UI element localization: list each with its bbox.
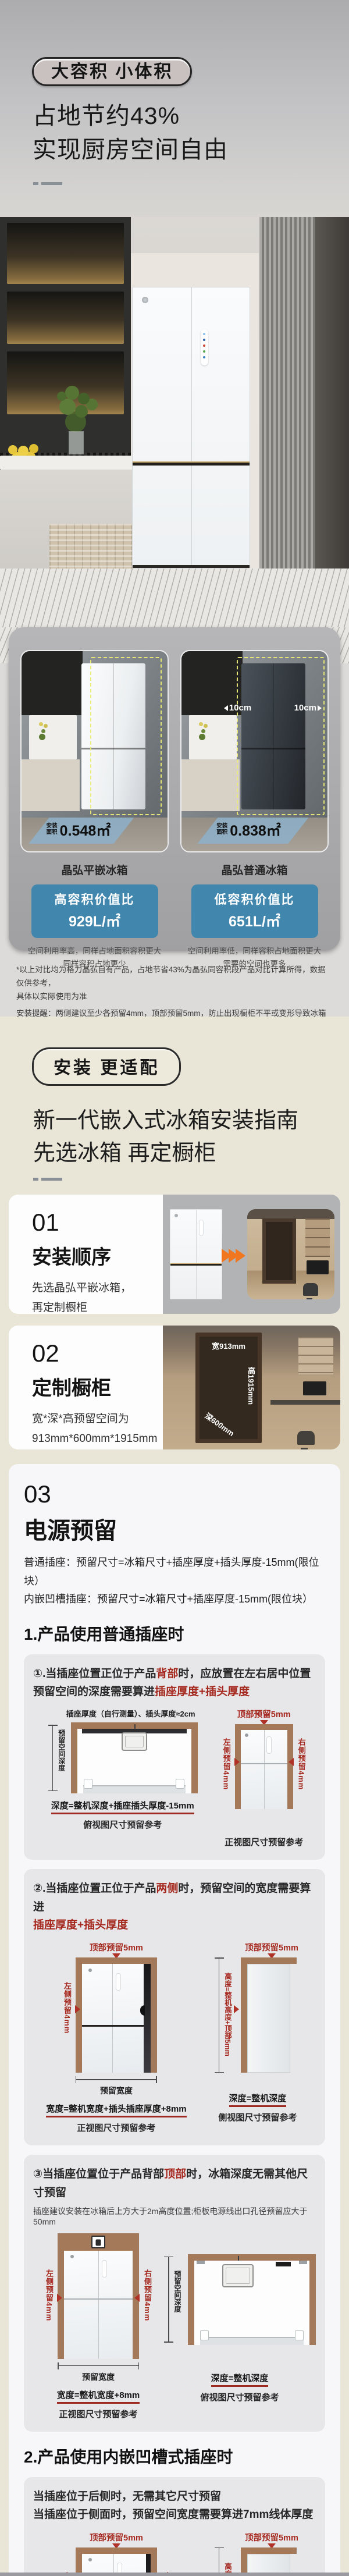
brand-logo-icon — [142, 297, 148, 303]
desc-line1: 宽*深*高预留空间为 — [32, 1409, 163, 1429]
right-reserve-label: 右侧预留4mm — [142, 2269, 153, 2321]
fridge-front — [82, 2554, 151, 2573]
text: ②.当插座位置正位于产品 — [33, 1882, 156, 1895]
hero-title-line2: 实现厨房空间自由 — [33, 133, 228, 166]
curtain — [259, 217, 315, 594]
footnote-text: 具体以实际使用为准 — [16, 992, 87, 1001]
fridge-front — [64, 2251, 133, 2359]
page-bottom-bar — [0, 2573, 349, 2576]
height-axis-label: 高度=整机高度+顶部5mm — [222, 1973, 233, 2056]
frontview-figure-column: 顶部预留5mm 左侧预留4mm 右侧预留4 — [212, 1708, 316, 1848]
desc-line2: 913mm*600mm*1915mm — [32, 1429, 163, 1449]
right-reserve-label: 右侧预留4mm — [296, 1738, 307, 1790]
panel-text: ②.当插座位置正位于产品两侧时，预留空间的宽度需要算进 插座厚度+插头厚度 — [33, 1879, 316, 1934]
cabinet-alcove-photo — [247, 1209, 334, 1299]
socket-knob — [140, 2005, 145, 2016]
step-description: 先选晶弘平嵌冰箱， 再定制橱柜 — [32, 1278, 163, 1314]
step2-text: 02 定制橱柜 宽*深*高预留空间为 913mm*600mm*1915mm — [9, 1326, 163, 1449]
frontview-figure-column: 左侧预留4mm 右侧预留4mm 预留宽度 宽度=整机宽度+8mm 正视图尺寸预留… — [33, 2233, 163, 2420]
area-prefix: 安装 — [47, 823, 58, 829]
formula-normal-socket: 普通插座：预留尺寸=冰箱尺寸+插座厚度+插头厚度-15mm(限位块） — [24, 1554, 325, 1590]
flush-fridge-photo: 安装面积 0.548㎡ — [20, 650, 169, 852]
brand-logo-icon — [88, 1969, 92, 1972]
panel-text: ①.当插座位置正位于产品背部时，应放置在左右居中位置 预留空间的深度需要算进插座… — [33, 1665, 316, 1701]
desc-line1: 空间利用率高，同样占地面积容积更大 — [20, 945, 169, 958]
brand-logo-icon — [88, 2558, 92, 2561]
cabinet-base — [181, 759, 240, 811]
comparison-section: 安装面积 0.548㎡ 晶弘平嵌冰箱 高容积价值比 929L/㎡ 空间利用率高，… — [0, 627, 349, 1017]
guide-badge-pill: 安装 更适配 — [32, 1047, 181, 1086]
socket-icon — [222, 2264, 254, 2287]
brand-logo-icon — [245, 1733, 248, 1737]
step1-text: 01 安装顺序 先选晶弘平嵌冰箱， 再定制橱柜 — [9, 1195, 163, 1314]
sideview-figure-column: 顶部预留5mm 高度=整机高度+顶部5mm 深度=整机深度 — [200, 2531, 316, 2573]
frontview-figure-column: 顶部预留5mm 左侧预留4mm — [33, 2531, 200, 2573]
fridge-plinth — [133, 565, 250, 568]
panel-recessed-socket: 当插座位于后侧时，无需其它尺寸预留 当插座位于侧面时，预留空间宽度需要算进7mm… — [24, 2477, 325, 2573]
power-reserve-formulas: 普通插座：预留尺寸=冰箱尺寸+插座厚度+插头厚度-15mm(限位块） 内嵌凹槽插… — [24, 1554, 325, 1609]
counter-edge — [270, 1400, 340, 1405]
text-red: 插座厚度+插头厚度 — [155, 1686, 250, 1698]
panel-side-socket: ②.当插座位置正位于产品两侧时，预留空间的宽度需要算进 插座厚度+插头厚度 顶部… — [24, 1869, 325, 2145]
left-clearance-label: 10cm — [224, 703, 251, 713]
width-formula: 宽度=整机宽度+8mm — [57, 2389, 140, 2404]
figure-caption: 俯视图尺寸预留参考 — [163, 2391, 316, 2403]
fridge-door-seam — [133, 461, 250, 466]
top-reserve-label: 顶部预留5mm — [237, 1708, 291, 1720]
text-red: 插座厚度+插头厚度 — [33, 1919, 128, 1931]
fridge-front — [82, 1964, 151, 2073]
lit-alcove — [189, 715, 237, 759]
text: 时，应放置在左右居中位置 — [178, 1668, 311, 1680]
width-measure-label: 预留宽度 — [33, 2085, 200, 2097]
hero-badge-pill: 大容积 小体积 — [32, 57, 192, 86]
comparison-left-column: 安装面积 0.548㎡ 晶弘平嵌冰箱 高容积价值比 929L/㎡ 空间利用率高，… — [20, 650, 169, 971]
step2-image: 宽913mm 高1915mm 深600mm — [163, 1326, 340, 1449]
top-reserve-label: 顶部预留5mm — [245, 1941, 298, 1953]
normal-fridge-photo: 10cm 10cm 安装面积 0.838㎡ — [180, 650, 329, 852]
hero-title: 占地节约43% 实现厨房空间自由 — [33, 99, 228, 166]
comparison-description: 空间利用率低，同样容积占地面积更大 需要的空间也更多 — [180, 945, 329, 971]
plug-icon — [96, 2239, 101, 2245]
red-right-triangle-icon — [234, 1758, 240, 1766]
product-name: 晶弘平嵌冰箱 — [20, 862, 169, 877]
lit-alcove — [29, 715, 77, 759]
value-ratio-badge: 高容积价值比 929L/㎡ — [31, 884, 158, 938]
comparison-right-column: 10cm 10cm 安装面积 0.838㎡ 晶弘普通冰箱 — [180, 650, 329, 971]
step-title: 电源预留 — [24, 1512, 325, 1545]
fridge-alcove: 宽913mm 高1915mm 深600mm — [195, 1333, 262, 1443]
dash-divider-icon — [33, 1178, 349, 1181]
install-area-label: 安装面积 0.838㎡ — [216, 819, 281, 840]
figure-caption: 正视图尺寸预留参考 — [212, 1836, 316, 1848]
figure-caption: 正视图尺寸预留参考 — [33, 2122, 200, 2134]
depth-formula: 深度=整机深度+插座插头厚度-15mm — [51, 1799, 194, 1814]
fridge-control-panel — [201, 329, 208, 365]
cabinet-top-bar — [241, 1957, 297, 1964]
lemons — [8, 445, 17, 454]
alcove-depth-label: 深600mm — [203, 1410, 237, 1438]
side-cable-strip — [146, 2554, 151, 2573]
area-prefix: 安装 — [216, 823, 227, 829]
clearance-text: 10cm — [294, 703, 316, 713]
alcove-height-label: 高1915mm — [245, 1367, 257, 1405]
clearance-text: 10cm — [229, 703, 251, 713]
control-panel — [200, 1220, 203, 1235]
area-value: 0.548㎡ — [60, 819, 111, 840]
step-number: 03 — [24, 1480, 325, 1508]
area-prefix: 面积 — [216, 829, 227, 836]
width-measure-label: 预留宽度 — [33, 2371, 163, 2383]
fridge-door-seam — [191, 287, 192, 568]
step1-image — [163, 1195, 340, 1314]
cabinet-frame — [58, 2233, 139, 2359]
cabinet-top — [22, 651, 83, 715]
panel-text: ③当插座位置位于产品背部顶部时，冰箱深度无需其他尺寸预留 — [33, 2165, 316, 2202]
depth-formula: 深度=整机深度 — [229, 2092, 287, 2107]
text: 预留空间的深度需要算进 — [33, 1686, 155, 1698]
guide-heading-line1: 新一代嵌入式冰箱安装指南 — [33, 1104, 349, 1137]
bar-chair — [297, 1431, 315, 1445]
hero-section: 大容积 小体积 占地节约43% 实现厨房空间自由 — [0, 0, 349, 627]
socket-icon — [122, 1732, 147, 1751]
badge-line2: 929L/㎡ — [31, 910, 158, 931]
step-number: 02 — [32, 1339, 163, 1367]
plant-vase — [69, 431, 84, 454]
figure-caption: 正视图尺寸预留参考 — [33, 2408, 163, 2420]
bar-chair — [303, 1283, 318, 1296]
control-panel — [117, 2563, 122, 2573]
value-ratio-badge: 低容积价值比 651L/㎡ — [191, 884, 318, 938]
dash-divider-icon — [33, 182, 62, 185]
control-panel — [102, 2261, 106, 2277]
width-measure-line — [58, 2362, 139, 2369]
hinge-bracket — [295, 2330, 304, 2340]
badge-line2: 651L/㎡ — [191, 910, 318, 931]
wine-cabinet — [0, 217, 131, 453]
figure-caption: 俯视图尺寸预留参考 — [33, 1818, 212, 1831]
cabinet-top-bar — [241, 2547, 297, 2554]
control-panel — [116, 1974, 120, 1990]
panel-back-socket: ①.当插座位置正位于产品背部时，应放置在左右居中位置 预留空间的深度需要算进插座… — [24, 1654, 325, 1860]
orange-arrows-icon — [225, 1249, 245, 1263]
kitchen-photo — [0, 217, 349, 627]
product-name: 晶弘普通冰箱 — [180, 862, 329, 877]
red-right-triangle-icon — [57, 2294, 62, 2302]
dashed-volume-outline — [237, 657, 325, 815]
area-value: 0.838㎡ — [230, 819, 281, 840]
plant — [57, 392, 66, 401]
fridge-top-slab — [200, 2337, 304, 2345]
fridge-front — [241, 1730, 287, 1809]
topview-diagram — [71, 1722, 198, 1793]
cabinet-niche — [7, 351, 124, 414]
fridge-side — [247, 2554, 290, 2573]
left-reserve-label: 左侧预留4mm — [221, 1738, 232, 1790]
brand-logo-icon — [70, 2255, 74, 2258]
badge-line1: 低容积价值比 — [191, 890, 318, 908]
hero-title-line1: 占地节约43% — [33, 99, 228, 133]
brand-logo-icon — [174, 1214, 178, 1217]
badge-line1: 高容积价值比 — [31, 890, 158, 908]
control-panel — [267, 1737, 271, 1753]
fridge-side — [247, 1964, 290, 2073]
red-right-triangle-icon — [75, 2005, 80, 2013]
striped-floor — [0, 569, 349, 627]
guide-heading: 新一代嵌入式冰箱安装指南 先选冰箱 再定橱柜 — [33, 1104, 349, 1170]
cable-outlet — [276, 2262, 291, 2266]
subsection2-heading: 2.产品使用内嵌凹槽式插座时 — [24, 2444, 325, 2468]
subsection1-heading: 1.产品使用普通插座时 — [24, 1622, 325, 1645]
hinge-bracket — [84, 1779, 92, 1789]
text-red: 顶部 — [164, 2168, 186, 2180]
top-reserve-label: 顶部预留5mm — [90, 2531, 143, 2543]
depth-axis-label: 预留空间深度 — [173, 2271, 183, 2312]
comparison-card: 安装面积 0.548㎡ 晶弘平嵌冰箱 高容积价值比 929L/㎡ 空间利用率高，… — [9, 627, 340, 951]
built-in-oven — [303, 1381, 326, 1395]
width-measure-line — [76, 2076, 157, 2083]
side-socket-strip — [144, 1964, 151, 2073]
install-area-label: 安装面积 0.548㎡ — [47, 819, 111, 840]
step2-card: 02 定制橱柜 宽*深*高预留空间为 913mm*600mm*1915mm 宽9… — [9, 1326, 340, 1449]
depth-axis-label: 预留空间深度 — [57, 1729, 67, 1771]
hinge-bracket — [200, 2330, 209, 2340]
socket-cord — [238, 2256, 239, 2261]
cabinet-frame — [76, 1957, 157, 2073]
top-reserve-label: 顶部预留5mm — [90, 1941, 143, 1953]
text: 当插座位于后侧时，无需其它尺寸预留 — [33, 2490, 221, 2503]
right-clearance-label: 10cm — [294, 703, 322, 713]
left-arrow-icon — [224, 705, 228, 711]
desc-line1: 先选晶弘平嵌冰箱， — [32, 1278, 163, 1298]
built-in-oven — [307, 1260, 329, 1274]
width-formula: 宽度=整机宽度+插头插座厚度+8mm — [46, 2102, 186, 2117]
cabinet-frame — [76, 2547, 157, 2573]
mount-clip — [197, 2261, 205, 2264]
text-red: 两侧 — [156, 1882, 178, 1895]
top-reserve-label: 顶部预留5mm — [245, 2531, 298, 2543]
comparison-description: 空间利用率高，同样占地面积容积更大 同样容积占地更少 — [20, 945, 169, 971]
desc-line2: 再定制橱柜 — [32, 1298, 163, 1314]
topview-figure-column: 预留空间深度 深度 — [163, 2233, 316, 2420]
cabinet-frame — [235, 1724, 293, 1809]
topview-diagram — [188, 2254, 316, 2345]
window-frame — [315, 217, 349, 594]
step1-card: 01 安装顺序 先选晶弘平嵌冰箱， 再定制橱柜 — [9, 1195, 340, 1314]
open-shelf — [305, 1218, 330, 1257]
cabinet-left-bar — [241, 1957, 247, 2073]
desc-line2: 同样容积占地更少 — [20, 958, 169, 971]
desc-line2: 需要的空间也更多 — [180, 958, 329, 971]
text: 当插座位于侧面时，预留空间宽度需要算进7mm线体厚度 — [33, 2509, 313, 2521]
formula-recessed-socket: 内嵌凹槽插座：预留尺寸=冰箱尺寸+插座厚度-15mm(限位块） — [24, 1590, 325, 1609]
red-left-triangle-icon — [289, 1758, 294, 1766]
panel-text: 当插座位于后侧时，无需其它尺寸预留 当插座位于侧面时，预留空间宽度需要算进7mm… — [33, 2488, 316, 2524]
step-number: 01 — [32, 1209, 163, 1237]
install-guide-section: 安装 更适配 新一代嵌入式冰箱安装指南 先选冰箱 再定橱柜 01 安装顺序 先选… — [0, 1017, 349, 2573]
frontview-figure-column: 顶部预留5mm 左侧预留 — [33, 1941, 200, 2134]
open-shelf — [298, 1337, 333, 1374]
height-axis-label: 高度=整机高度+顶部5mm — [222, 2563, 233, 2573]
fridge-alcove — [262, 1218, 296, 1284]
socket-cord — [134, 1724, 136, 1729]
mount-clip — [299, 2261, 307, 2264]
white-fridge-thumb — [170, 1209, 222, 1299]
step-description: 宽*深*高预留空间为 913mm*600mm*1915mm — [32, 1409, 163, 1449]
fridge-hero — [132, 287, 250, 569]
step3-card: 03 电源预留 普通插座：预留尺寸=冰箱尺寸+插座厚度+插头厚度-15mm(限位… — [9, 1464, 340, 2573]
left-reserve-label: 左侧预留4mm — [44, 2269, 55, 2321]
fridge-top-slab — [83, 1785, 186, 1793]
text-red: 背部 — [156, 1668, 178, 1680]
step-title: 定制橱柜 — [32, 1372, 163, 1401]
socket-icon — [91, 2236, 105, 2248]
cabinet-left-bar — [241, 2547, 247, 2573]
red-left-triangle-icon — [134, 2294, 140, 2302]
red-right-triangle-icon — [234, 2005, 239, 2013]
panel-subtext: 插座建议安装在冰箱后上方大于2m高度位置;柜板电源线出口孔径预留应大于50mm — [33, 2205, 316, 2226]
product-detail-page: 大容积 小体积 占地节约43% 实现厨房空间自由 — [0, 0, 349, 2576]
panel-top-socket: ③当插座位置位于产品背部顶部时，冰箱深度无需其他尺寸预留 插座建议安装在冰箱后上… — [24, 2155, 325, 2432]
left-reserve-label: 左侧预留4mm — [62, 1982, 73, 2034]
cabinet-base — [22, 759, 80, 811]
text: ③当插座位置位于产品背部 — [33, 2168, 164, 2180]
area-prefix: 面积 — [47, 829, 58, 836]
alcove-width-label: 宽913mm — [200, 1340, 258, 1351]
desc-line1: 空间利用率低，同样容积占地面积更大 — [180, 945, 329, 958]
island-countertop — [0, 456, 150, 470]
right-arrow-icon — [318, 705, 322, 711]
hinge-bracket — [176, 1779, 184, 1789]
text: ①.当插座位置正位于产品 — [33, 1668, 156, 1680]
cabinet-niche — [7, 292, 124, 344]
figure-caption: 侧视图尺寸预留参考 — [200, 2111, 316, 2123]
cabinet-niche — [7, 223, 124, 284]
topview-figure-column: 插座厚度（自行测量）、插头厚度≈2cm 预留空间深度 — [33, 1708, 212, 1848]
sideview-figure-column: 顶部预留5mm 高度=整机高度+顶部5mm 深度=整机深度 — [200, 1941, 316, 2134]
depth-formula: 深度=整机深度 — [211, 2372, 269, 2387]
guide-heading-line2: 先选冰箱 再定橱柜 — [33, 1137, 349, 1170]
step-title: 安装顺序 — [32, 1241, 163, 1270]
socket-thickness-label: 插座厚度（自行测量）、插头厚度≈2cm — [33, 1708, 212, 1719]
dashed-volume-outline — [90, 657, 162, 815]
